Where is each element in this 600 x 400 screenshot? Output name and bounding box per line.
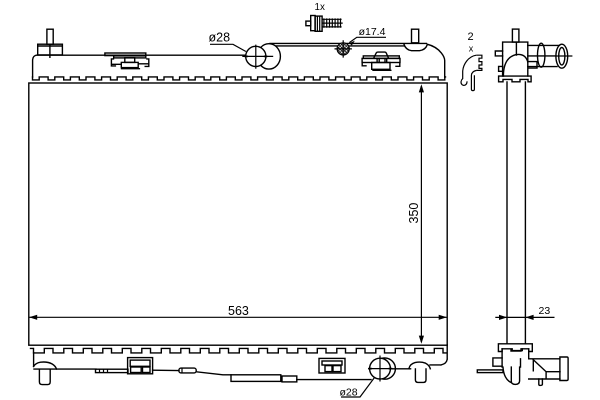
svg-text:2: 2	[468, 31, 474, 43]
svg-text:x: x	[469, 44, 474, 54]
svg-text:1x: 1x	[315, 2, 325, 13]
svg-text:350: 350	[407, 203, 421, 224]
svg-text:563: 563	[228, 304, 249, 318]
svg-text:23: 23	[539, 305, 551, 317]
svg-text:ø28: ø28	[209, 31, 231, 45]
svg-text:ø17.4: ø17.4	[359, 26, 386, 38]
